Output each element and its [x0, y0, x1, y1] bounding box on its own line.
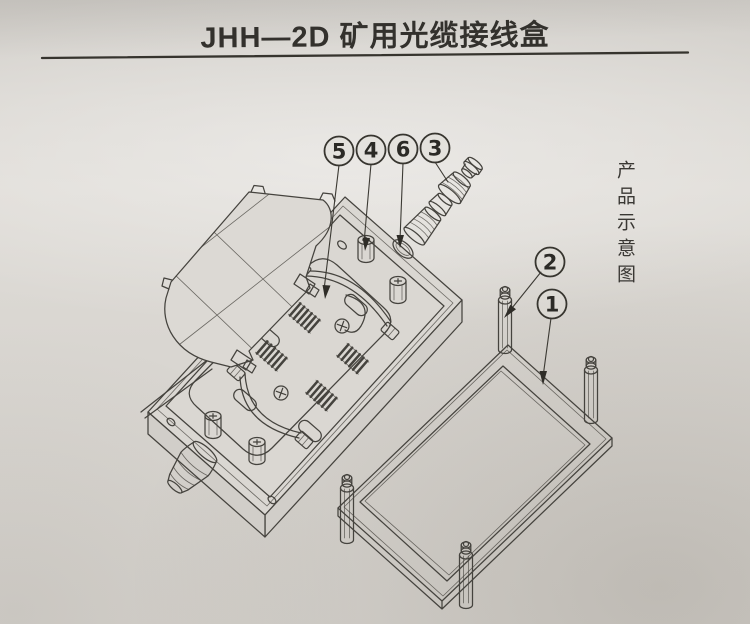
arrowhead-2 — [504, 305, 516, 318]
callout-1: 1 — [538, 290, 567, 319]
svg-text:3: 3 — [428, 137, 443, 161]
callout-2: 2 — [536, 248, 565, 277]
svg-text:2: 2 — [543, 251, 558, 275]
cable-gland-exploded — [401, 152, 488, 248]
gland-seal — [427, 191, 454, 218]
callout-5: 5 — [325, 137, 354, 166]
callout-3: 3 — [421, 134, 450, 163]
svg-text:1: 1 — [545, 293, 560, 317]
corner-bolt — [499, 287, 512, 354]
corner-bolt — [585, 357, 598, 424]
gland-cap — [458, 155, 484, 181]
svg-text:5: 5 — [332, 140, 347, 164]
product-diagram: 5 4 6 3 2 1 — [0, 0, 750, 624]
paper-background: JHH—2D 矿用光缆接线盒 产品示意图 — [0, 0, 750, 624]
corner-bolt — [460, 542, 473, 609]
corner-bolt — [341, 475, 354, 544]
leader-line-1 — [543, 318, 551, 377]
leader-line-3 — [435, 162, 448, 182]
title-underline — [42, 53, 688, 59]
callout-4: 4 — [357, 136, 386, 165]
callout-6: 6 — [389, 135, 418, 164]
leader-line-6 — [400, 163, 403, 240]
svg-text:6: 6 — [396, 138, 411, 162]
gland-body — [402, 203, 445, 247]
arrowhead-1 — [540, 371, 548, 385]
svg-text:4: 4 — [364, 139, 379, 163]
